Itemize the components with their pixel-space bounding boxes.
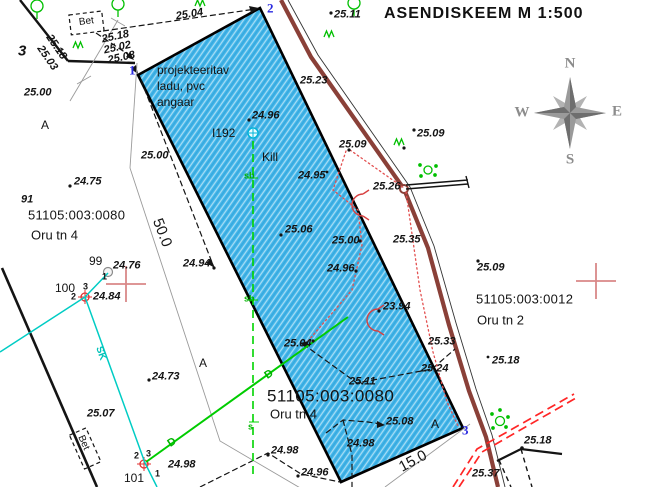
map-label-projekteeritav: projekteeritav: [157, 64, 229, 76]
map-label-2: 2: [267, 2, 274, 15]
map-label-1: 1: [129, 64, 136, 77]
map-label-24-98: 24.98: [347, 439, 375, 450]
compass-south-label: S: [566, 152, 574, 169]
map-label-25-09: 25.09: [417, 129, 445, 140]
map-label-1: 1: [102, 273, 107, 282]
map-label-24-95: 24.95: [298, 171, 326, 182]
map-label-23-94: 23.94: [383, 302, 411, 313]
map-label-bet: Bet: [75, 434, 90, 452]
map-label-25-37: 25.37: [472, 469, 500, 480]
map-label-91: 91: [21, 195, 33, 206]
map-label-24-96: 24.96: [301, 468, 329, 479]
map-label-25-18: 25.18: [524, 436, 552, 447]
map-label-25-08: 25.08: [386, 417, 414, 428]
map-label-25-04: 25.04: [175, 7, 204, 22]
map-label-2: 2: [134, 452, 139, 461]
map-labels-layer: 25.0425.1125.1825.0225.0825.1825.03325.0…: [0, 0, 650, 487]
map-label-oru-tn-4: Oru tn 4: [31, 229, 78, 242]
map-label-25-33: 25.33: [428, 337, 456, 348]
map-label-99: 99: [89, 255, 102, 267]
map-label-24-84: 24.84: [93, 292, 121, 303]
map-label-25-09: 25.09: [477, 263, 505, 274]
map-label-25-09: 25.09: [339, 140, 367, 151]
map-label-25-00: 25.00: [24, 88, 52, 99]
map-label-s: s: [248, 423, 253, 432]
map-label-bet: Bet: [78, 16, 94, 28]
map-label-24-94: 24.94: [183, 259, 211, 270]
map-label-d: D: [263, 368, 276, 382]
compass-west-label: W: [515, 105, 530, 122]
map-label-a: A: [199, 357, 207, 369]
map-label-3: 3: [83, 283, 88, 292]
map-title: ASENDISKEEM M 1:500: [384, 5, 584, 23]
map-label-ladu-pvc: ladu, pvc: [157, 80, 205, 92]
map-label-sb: sb: [244, 172, 255, 181]
map-label-2: 2: [71, 293, 76, 302]
map-label-25-26: 25.26: [373, 182, 401, 193]
map-label-25-07: 25.07: [87, 409, 115, 420]
map-label-25-18: 25.18: [492, 356, 520, 367]
map-label-15-0: 15.0: [396, 448, 429, 475]
map-label-1: 1: [155, 470, 160, 479]
map-label-25-06: 25.06: [285, 225, 313, 236]
map-label-a: A: [41, 119, 49, 131]
map-label-24-75: 24.75: [74, 177, 102, 188]
map-label-24-96: 24.96: [327, 264, 355, 275]
map-label-angaar: angaar: [157, 96, 194, 108]
map-label-sb: sb: [244, 295, 255, 304]
map-label-51105-003-0080: 51105:003:0080: [267, 388, 394, 405]
map-label-51105-003-0012: 51105:003:0012: [476, 293, 573, 306]
map-label-sk: SK: [93, 345, 107, 361]
map-label-3: 3: [18, 44, 26, 59]
map-label-3: 3: [146, 450, 151, 459]
map-label-25-11: 25.11: [334, 10, 361, 21]
compass-north-label: N: [565, 56, 576, 73]
map-label-24-76: 24.76: [113, 261, 141, 272]
map-label-24-98: 24.98: [271, 446, 299, 457]
map-label-oru-tn-2: Oru tn 2: [477, 314, 524, 327]
map-label-24-73: 24.73: [152, 372, 180, 383]
map-label-25-35: 25.35: [393, 235, 421, 246]
map-label-24-96: 24.96: [252, 111, 280, 122]
map-label-51105-003-0080: 51105:003:0080: [28, 209, 125, 222]
map-label-25-00: 25.00: [332, 236, 360, 247]
map-label-kill: Kill: [262, 151, 278, 163]
map-label-i192: I192: [212, 127, 235, 139]
map-label-101: 101: [124, 472, 144, 484]
compass-east-label: E: [612, 104, 622, 121]
map-label-25-24: 25.24: [421, 364, 449, 375]
map-label-3: 3: [462, 424, 469, 437]
site-plan-map: 25.0425.1125.1825.0225.0825.1825.03325.0…: [0, 0, 650, 487]
map-label-d: D: [166, 436, 179, 450]
map-label-25-04: 25.04: [284, 339, 312, 350]
map-label-50-0: 50.0: [150, 216, 174, 249]
map-label-a: A: [431, 418, 439, 430]
map-label-oru-tn-4: Oru tn 4: [270, 408, 317, 421]
map-label-25-23: 25.23: [300, 76, 328, 87]
map-label-24-98: 24.98: [168, 460, 196, 471]
map-label-25-00: 25.00: [141, 151, 169, 162]
